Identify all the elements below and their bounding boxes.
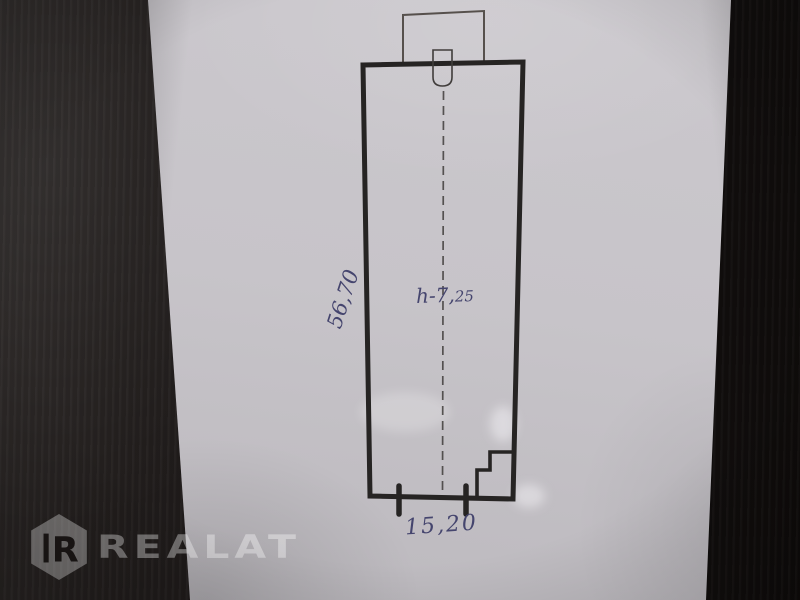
- floor-plan-drawing: [0, 0, 800, 600]
- height-note-decimals: 25: [454, 287, 474, 306]
- entry-marker: [433, 50, 452, 86]
- bottom-dimension-label: 15,20: [404, 510, 479, 540]
- photo-of-floor-plan: 56,70 h-7,25 15,20 R REALAT: [0, 0, 800, 600]
- logo-letter: R: [52, 529, 79, 570]
- height-note-label: h-7,25: [416, 282, 475, 308]
- height-note-value: h-7,: [416, 283, 456, 308]
- top-annex-outline: [403, 11, 484, 65]
- realat-watermark: R REALAT: [30, 513, 301, 581]
- stairs-steps: [477, 452, 513, 497]
- brand-text: REALAT: [97, 528, 301, 565]
- realat-logo-icon: R: [30, 514, 88, 580]
